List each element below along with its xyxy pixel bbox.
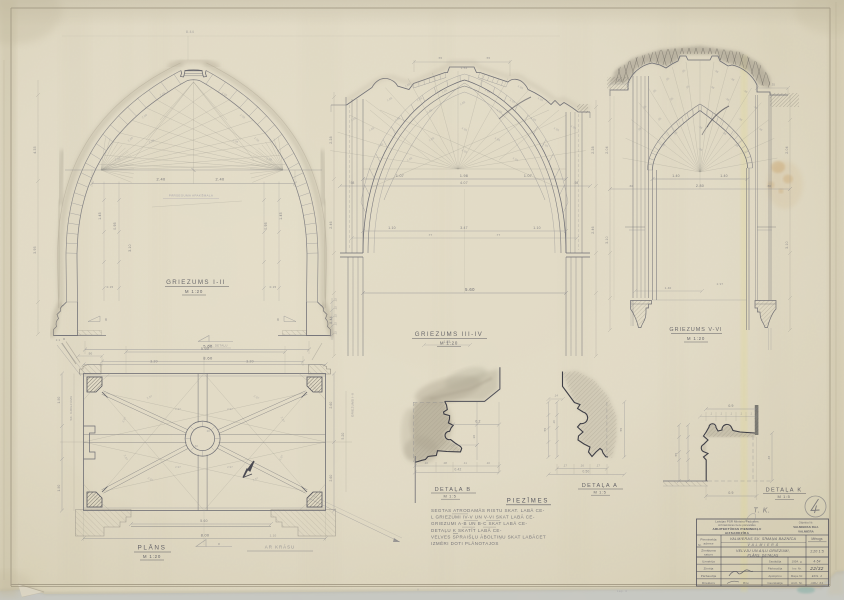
svg-text:.10: .10: [424, 461, 429, 465]
svg-text:2.97: 2.97: [175, 407, 181, 411]
svg-text:5.60: 5.60: [201, 347, 209, 351]
svg-text:.55: .55: [543, 427, 547, 432]
svg-text:2.28: 2.28: [591, 146, 595, 153]
svg-text:3.20: 3.20: [150, 360, 157, 364]
svg-text:4-54: 4-54: [813, 560, 820, 564]
svg-text:DETAĻA A: DETAĻA A: [582, 483, 618, 489]
svg-text:.77: .77: [428, 233, 433, 237]
svg-text:8.60: 8.60: [203, 356, 213, 361]
svg-text:4.07: 4.07: [460, 181, 468, 185]
svg-text:.08: .08: [443, 461, 448, 465]
svg-text:Mērogs: Mērogs: [811, 537, 823, 541]
svg-text:0.95: 0.95: [264, 222, 268, 229]
svg-text:2.46: 2.46: [329, 221, 333, 228]
svg-text:.48: .48: [767, 455, 771, 460]
svg-text:.55: .55: [619, 427, 623, 432]
svg-text:M 1:5: M 1:5: [593, 490, 606, 495]
svg-text:3.10: 3.10: [128, 244, 132, 251]
svg-text:IZMĒRI DOTI PLĀNOTAJOS: IZMĒRI DOTI PLĀNOTAJOS: [431, 540, 499, 546]
svg-text:VALMIERAS SV. SĪMAŅA BAZNĪCA: VALMIERAS SV. SĪMAŅA BAZNĪCA: [730, 537, 797, 541]
svg-text:8.44: 8.44: [329, 316, 333, 323]
svg-text:Pārbaudīja: Pārbaudīja: [768, 567, 783, 571]
svg-text:AR KRĀSU: AR KRĀSU: [265, 545, 295, 550]
svg-text:1.10: 1.10: [533, 226, 540, 230]
svg-text:3.47: 3.47: [460, 226, 467, 230]
svg-text:5.60: 5.60: [465, 287, 475, 292]
svg-text:3.10: 3.10: [785, 241, 789, 248]
svg-text:M 1:5: M 1:5: [443, 494, 456, 499]
svg-text:PIEZĪMES: PIEZĪMES: [507, 498, 549, 505]
svg-text:.90: .90: [206, 429, 211, 433]
svg-text:EKS. 2: EKS. 2: [812, 574, 823, 578]
svg-text:DETAĻA K: DETAĻA K: [766, 488, 803, 494]
svg-text:.35: .35: [617, 79, 622, 83]
svg-text:22/32: 22/32: [809, 566, 824, 571]
svg-text:Zīmēja: Zīmēja: [704, 567, 714, 571]
svg-text:VALMIERA: VALMIERA: [798, 529, 814, 533]
svg-text:1.45: 1.45: [279, 212, 283, 219]
svg-text:GRIEZUMS III-IV: GRIEZUMS III-IV: [415, 331, 483, 338]
svg-text:.30: .30: [472, 434, 476, 439]
svg-text:1.40: 1.40: [665, 286, 672, 290]
svg-text:1954. g.: 1954. g.: [792, 560, 803, 564]
svg-text:.60: .60: [194, 444, 199, 448]
svg-text:1.10: 1.10: [270, 534, 277, 538]
svg-text:Caurskatīja: Caurskatīja: [767, 581, 783, 585]
svg-text:Arch. Nr.: Arch. Nr.: [791, 581, 803, 585]
svg-text:Bite: Bite: [743, 581, 749, 585]
svg-text:1:20 1:5: 1:20 1:5: [810, 550, 824, 554]
svg-text:Mape Nr.: Mape Nr.: [791, 574, 803, 578]
svg-text:PLĀNS: PLĀNS: [138, 544, 167, 552]
svg-text:Apstiprinu: Apstiprinu: [768, 574, 782, 578]
svg-text:.16: .16: [580, 464, 585, 468]
svg-text:5.20: 5.20: [341, 432, 345, 439]
svg-text:2.04: 2.04: [785, 146, 789, 153]
svg-text:R: R: [218, 542, 220, 546]
svg-text:T. K.: T. K.: [753, 508, 770, 515]
svg-text:.14: .14: [554, 394, 559, 398]
svg-text:1.40: 1.40: [672, 174, 679, 178]
svg-text:1.54: 1.54: [461, 66, 468, 70]
svg-text:VELVES SPRAIŠĻU ĀBOLTIŅU SKAT: VELVES SPRAIŠĻU ĀBOLTIŅU SKAT LABĀCET: [431, 533, 546, 539]
svg-text:1.40: 1.40: [720, 174, 727, 178]
svg-text:GRIEZUMS V-VI: GRIEZUMS V-VI: [669, 327, 722, 333]
svg-text:.98: .98: [349, 181, 354, 185]
svg-text:ARH. 64: ARH. 64: [810, 581, 824, 585]
svg-text:.60: .60: [629, 184, 634, 188]
svg-text:.17: .17: [563, 464, 568, 468]
svg-text:.98: .98: [573, 181, 578, 185]
svg-text:.35: .35: [771, 83, 776, 87]
svg-text:DETAĻU K SKATĪT LABĀ: DETAĻU K SKATĪT LABĀ CE-: [431, 527, 502, 533]
svg-text:.10: .10: [486, 461, 491, 465]
svg-text:2.97: 2.97: [717, 282, 724, 286]
svg-text:M 1:5: M 1:5: [777, 494, 790, 499]
svg-text:1.07: 1.07: [396, 174, 404, 178]
svg-text:1.45: 1.45: [98, 212, 102, 219]
svg-text:M: M: [417, 588, 419, 592]
svg-text:4.35: 4.35: [33, 146, 37, 153]
svg-text:Inv. Nr.: Inv. Nr.: [792, 567, 801, 571]
svg-text:1.10: 1.10: [388, 226, 395, 230]
svg-text:3.20: 3.20: [246, 360, 253, 364]
svg-text:3.10: 3.10: [605, 236, 609, 243]
svg-text:2.60: 2.60: [329, 474, 333, 481]
svg-text:Objekta Nr.: Objekta Nr.: [799, 521, 814, 525]
svg-text:0.50: 0.50: [582, 470, 589, 474]
svg-text:SK. GRIEZUMU: SK. GRIEZUMU: [69, 395, 73, 420]
svg-text:.17: .17: [596, 464, 601, 468]
svg-text:Sastādīja: Sastādīja: [769, 560, 782, 564]
svg-text:.90: .90: [88, 352, 93, 356]
svg-text:2.28: 2.28: [329, 136, 333, 143]
svg-text:GRIEZUMI A-B UN B-C SKAT L: GRIEZUMI A-B UN B-C SKAT LABĀ CE-: [431, 520, 527, 526]
svg-text:2.60: 2.60: [329, 401, 333, 408]
svg-text:Lap. 4: Lap. 4: [617, 589, 627, 593]
svg-text:5.60: 5.60: [200, 519, 207, 523]
svg-text:0.42: 0.42: [454, 468, 461, 472]
svg-text:1.07: 1.07: [524, 174, 532, 178]
svg-text:adrese: adrese: [703, 542, 713, 546]
svg-text:GRIEZUMS I-II: GRIEZUMS I-II: [166, 279, 226, 286]
svg-text:0.9: 0.9: [728, 404, 733, 408]
svg-text:M 1:20: M 1:20: [143, 554, 161, 559]
svg-text:Nr.: Nr.: [698, 543, 702, 547]
svg-text:.55: .55: [674, 452, 678, 457]
svg-text:0.95: 0.95: [113, 222, 117, 229]
svg-text:0.9: 0.9: [728, 491, 733, 495]
svg-text:M 1:20: M 1:20: [440, 341, 458, 346]
svg-text:.55: .55: [486, 56, 491, 60]
svg-text:.11: .11: [463, 461, 467, 465]
svg-text:2.04: 2.04: [605, 146, 609, 153]
svg-text:0.2: 0.2: [475, 420, 480, 424]
svg-text:V A L M I E R Ā: V A L M I E R Ā: [748, 543, 779, 547]
svg-text:DETAĻA B: DETAĻA B: [435, 487, 472, 493]
svg-text:.77: .77: [496, 233, 501, 237]
svg-text:0.15: 0.15: [107, 285, 114, 289]
svg-text:1.90: 1.90: [57, 396, 61, 403]
svg-text:M 1:20: M 1:20: [185, 289, 203, 294]
svg-text:Direktors: Direktors: [702, 581, 715, 585]
svg-text:M 1:20: M 1:20: [687, 336, 705, 341]
svg-text:2.97: 2.97: [227, 465, 233, 469]
svg-text:2.40: 2.40: [157, 178, 166, 182]
svg-text:1.90: 1.90: [57, 484, 61, 491]
svg-text:3.95: 3.95: [33, 246, 37, 253]
svg-text:Uzmērīja: Uzmērīja: [702, 560, 715, 564]
svg-text:8.00: 8.00: [201, 534, 210, 538]
svg-text:2.97: 2.97: [175, 465, 181, 469]
svg-text:AIZSARDZĪBA: AIZSARDZĪBA: [725, 531, 750, 535]
svg-text:0.15: 0.15: [270, 285, 277, 289]
svg-text:.55: .55: [438, 56, 443, 60]
svg-text:PĀRSEGUMA APAKŠMALA: PĀRSEGUMA APAKŠMALA: [169, 193, 214, 198]
svg-text:1.98: 1.98: [460, 174, 468, 178]
svg-text:8.44: 8.44: [186, 30, 194, 34]
svg-text:Pārbaudīja: Pārbaudīja: [701, 574, 717, 578]
svg-text:2.46: 2.46: [591, 226, 595, 233]
svg-text:2.97: 2.97: [227, 407, 233, 411]
svg-text:L GRIEZUMI IV-V UN V-VI SK: L GRIEZUMI IV-V UN V-VI SKAT LABĀ CE-: [431, 514, 535, 520]
svg-text:saturs: saturs: [704, 553, 713, 557]
svg-text:SEGTAS ATRODAMĀS RISTU SKAT. L: SEGTAS ATRODAMĀS RISTU SKAT. LABĀ CE-: [431, 507, 545, 513]
svg-text:.20: .20: [552, 420, 556, 425]
svg-text:1:1: 1:1: [56, 338, 61, 342]
svg-text:2.40: 2.40: [216, 178, 225, 182]
svg-text:.60: .60: [767, 184, 772, 188]
svg-text:GRIEZUMS I-II: GRIEZUMS I-II: [351, 393, 355, 417]
svg-text:PLĀNS. DETAĻAS: PLĀNS. DETAĻAS: [748, 553, 779, 557]
